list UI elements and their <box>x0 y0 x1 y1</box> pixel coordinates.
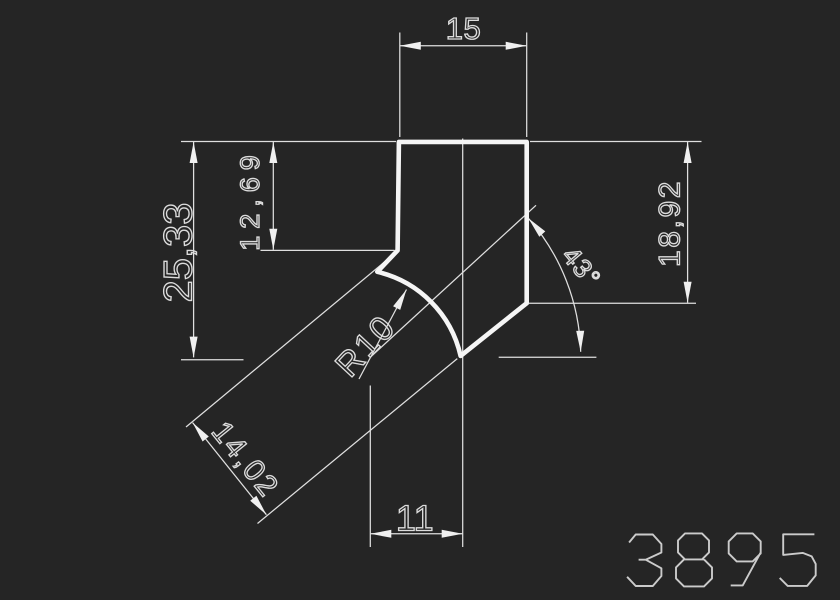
svg-text:18,92: 18,92 <box>654 179 687 267</box>
svg-text:25,33: 25,33 <box>157 202 201 302</box>
svg-text:15: 15 <box>446 11 481 46</box>
svg-text:11: 11 <box>396 498 434 539</box>
svg-text:12,69: 12,69 <box>235 148 265 251</box>
